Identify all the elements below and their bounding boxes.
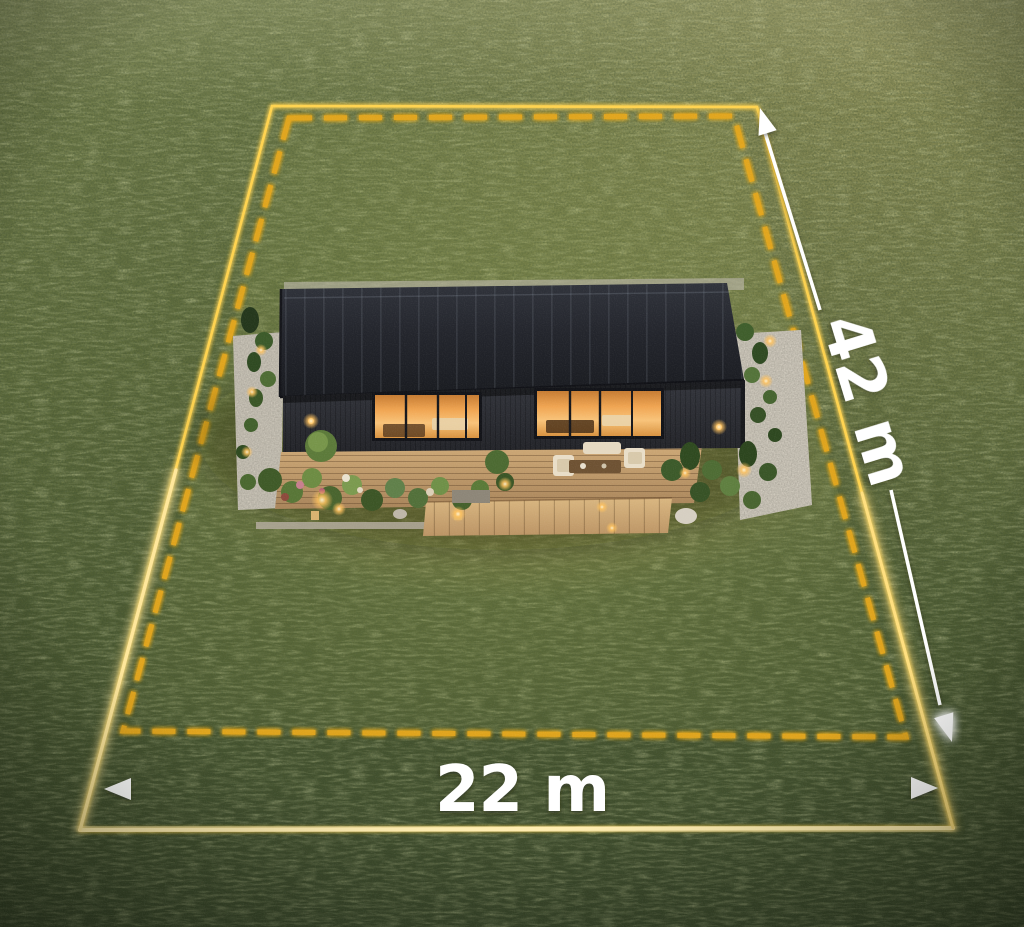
film-grain — [0, 0, 1024, 927]
site-plan-canvas: 42 m 22 m — [0, 0, 1024, 927]
aerial-property-render: 42 m 22 m — [0, 0, 1024, 927]
